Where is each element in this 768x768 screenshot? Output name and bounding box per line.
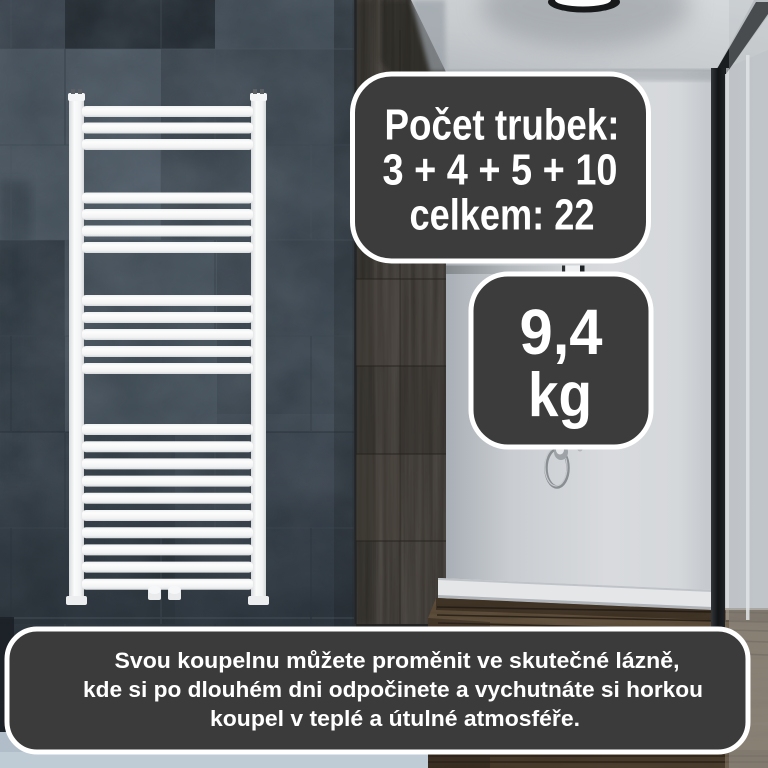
svg-text:Svou koupelnu můžete proměnit: Svou koupelnu můžete proměnit ve skutečn… bbox=[115, 648, 680, 673]
svg-text:kg: kg bbox=[528, 361, 592, 430]
svg-text:celkem: 22: celkem: 22 bbox=[410, 191, 595, 240]
svg-text:Počet trubek:: Počet trubek: bbox=[385, 101, 620, 150]
svg-text:3 + 4 + 5 + 10: 3 + 4 + 5 + 10 bbox=[383, 146, 618, 195]
svg-text:9,4: 9,4 bbox=[520, 296, 603, 368]
svg-text:koupel v teplé a útulné atmosf: koupel v teplé a útulné atmosféře. bbox=[210, 706, 580, 731]
svg-text:kde si po dlouhém dni odpočine: kde si po dlouhém dni odpočinete a vychu… bbox=[83, 677, 703, 702]
